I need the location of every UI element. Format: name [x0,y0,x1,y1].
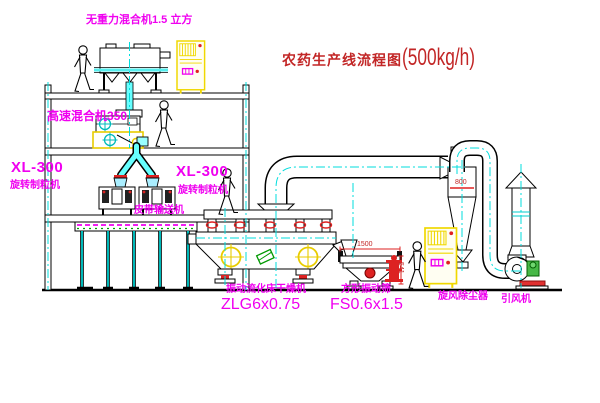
fluid-bed-dryer-machine [188,204,336,283]
control-cabinet-ground [425,228,457,288]
page-title: 农药生产线流程图(500kg/h) [282,46,503,70]
label-gravity-mixer: 无重力混合机1.5 立方 [86,15,192,26]
label-cyclone: 旋风除尘器 [438,292,488,302]
label-granulator-model-right: XL-300 [176,164,228,179]
granulator-left-machine [99,175,135,215]
worker-second-floor [156,101,176,147]
gravity-mixer-machine [94,44,170,112]
label-dryer-name: 振动流化床干燥机 [226,285,306,295]
flow-diagram-canvas: 农药生产线流程图(500kg/h) 无重力混合机1.5 立方 高速混合机350 … [0,0,600,403]
label-granulator-left: 旋转制粒机 [10,181,60,191]
worker-top-floor [75,46,95,92]
label-sieve-name: 方形振动筛 [341,285,391,295]
label-granulator-right: 旋转制粒机 [178,186,228,196]
label-dryer-model: ZLG6x0.75 [221,297,300,313]
label-belt-conveyor: 皮带输送机 [134,206,184,216]
title-chinese: 农药生产线流程图 [282,52,402,68]
belt-conveyor-machine [75,222,197,288]
dryer-exhaust-duct [276,167,448,214]
title-capacity: (500kg/h) [402,46,475,70]
label-sieve-model: FS0.6x1.5 [330,297,403,313]
control-cabinet-top [177,41,205,93]
label-high-speed-mixer: 高速混合机350 [47,110,127,122]
dim-cyclone-width: 800 [455,179,467,186]
induced-draft-fan-machine [505,255,548,289]
dim-sieve-height: 541 [397,262,404,274]
dim-sieve-length: 1500 [357,241,373,248]
label-granulator-model-left: XL-300 [11,160,63,175]
label-fan: 引风机 [501,295,531,305]
